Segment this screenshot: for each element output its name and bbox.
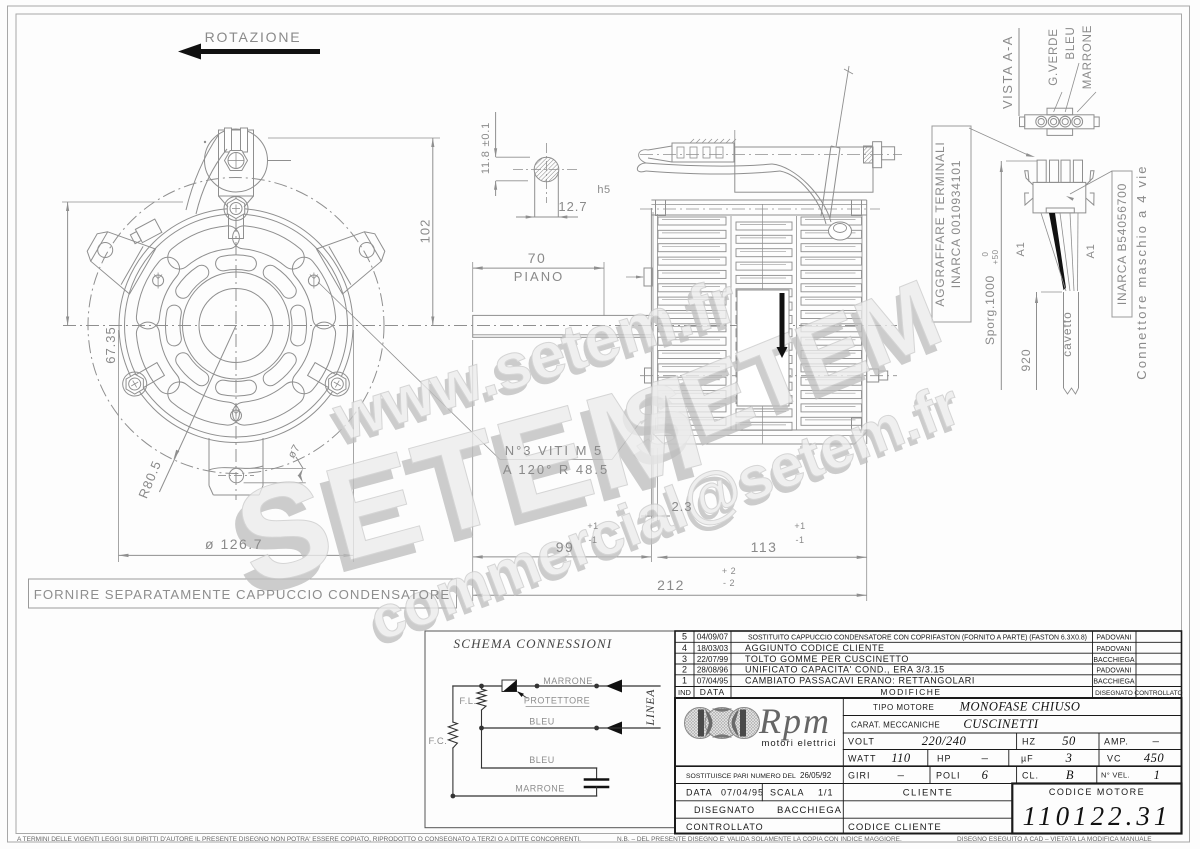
svg-text:+1: +1 — [587, 521, 598, 531]
svg-text:A TERMINI DELLE VIGENTI LEGGI: A TERMINI DELLE VIGENTI LEGGI SUI DIRITT… — [17, 836, 581, 843]
svg-text:AMP.: AMP. — [1104, 737, 1129, 747]
svg-text:UNIFICATO CAPACITA' COND., ERA: UNIFICATO CAPACITA' COND., ERA 3/3.15 — [745, 665, 945, 675]
svg-text:µF: µF — [1021, 754, 1034, 764]
svg-text:TOLTO GOMME PER CUSCINETTO: TOLTO GOMME PER CUSCINETTO — [745, 654, 909, 664]
svg-text:113: 113 — [751, 539, 778, 555]
svg-text:PADOVANI: PADOVANI — [1096, 646, 1131, 653]
svg-text:Sporg.1000: Sporg.1000 — [983, 275, 997, 345]
svg-text:+1: +1 — [794, 521, 805, 531]
svg-text:1: 1 — [1154, 768, 1161, 782]
svg-text:04/09/07: 04/09/07 — [697, 633, 729, 642]
svg-text:VC: VC — [1107, 754, 1122, 764]
svg-text:BLEU: BLEU — [529, 717, 555, 727]
svg-text:VOLT: VOLT — [848, 737, 875, 747]
svg-text:450: 450 — [1144, 751, 1165, 765]
svg-text:CARAT. MECCANICHE: CARAT. MECCANICHE — [851, 721, 940, 730]
svg-text:CL.: CL. — [1022, 771, 1039, 781]
svg-text:11.8 ±0.1: 11.8 ±0.1 — [480, 122, 492, 174]
svg-text:CODICE MOTORE: CODICE MOTORE — [1049, 787, 1145, 797]
svg-text:PADOVANI: PADOVANI — [1096, 668, 1131, 675]
svg-text:CONTROLLATO: CONTROLLATO — [1134, 690, 1182, 697]
svg-text:DISEGNATO: DISEGNATO — [694, 805, 755, 815]
svg-text:CLIENTE: CLIENTE — [903, 788, 954, 799]
svg-text:h5: h5 — [597, 184, 610, 196]
svg-text:2: 2 — [682, 665, 687, 675]
svg-text:FORNIRE SEPARATAMENTE CAPPUCCI: FORNIRE SEPARATAMENTE CAPPUCCIO CONDENSA… — [34, 587, 450, 602]
svg-text:CUSCINETTI: CUSCINETTI — [963, 717, 1038, 731]
svg-text:- 2: - 2 — [723, 578, 735, 588]
svg-text:102: 102 — [418, 219, 433, 244]
svg-text:07/04/95: 07/04/95 — [697, 676, 729, 685]
svg-text:PIANO: PIANO — [514, 269, 564, 284]
svg-text:SCHEMA CONNESSIONI: SCHEMA CONNESSIONI — [454, 636, 613, 651]
svg-text:BACCHIEGA: BACCHIEGA — [1093, 678, 1135, 685]
svg-text:CAMBIATO PASSACAVI ERANO: RETT: CAMBIATO PASSACAVI ERANO: RETTANGOLARI — [745, 675, 975, 685]
svg-text:IND: IND — [678, 688, 692, 697]
svg-text:N° VEL.: N° VEL. — [1101, 771, 1130, 780]
svg-text:-1: -1 — [588, 535, 597, 545]
svg-text:AGGRAFFARE TERMINALI: AGGRAFFARE TERMINALI — [933, 141, 947, 306]
svg-text:+ 2: + 2 — [722, 566, 736, 576]
svg-text:5: 5 — [682, 632, 687, 642]
svg-text:PADOVANI: PADOVANI — [1096, 635, 1131, 642]
svg-text:VISTA A-A: VISTA A-A — [1000, 35, 1015, 109]
svg-text:50: 50 — [1062, 734, 1076, 748]
svg-text:cavetto: cavetto — [1060, 311, 1074, 357]
svg-text:BLEU: BLEU — [1065, 26, 1077, 59]
svg-text:AGGIUNTO CODICE CLIENTE: AGGIUNTO CODICE CLIENTE — [745, 643, 885, 653]
svg-text:DISEGNO ESEGUITO A CAD – VIETA: DISEGNO ESEGUITO A CAD – VIETATA LA MODI… — [957, 836, 1152, 843]
svg-text:–: – — [1152, 734, 1160, 748]
svg-text:18/03/03: 18/03/03 — [697, 644, 729, 653]
svg-text:TIPO MOTORE: TIPO MOTORE — [873, 703, 934, 712]
svg-text:BLEU: BLEU — [529, 755, 555, 765]
svg-text:0: 0 — [981, 251, 990, 256]
svg-text:70: 70 — [528, 250, 547, 266]
svg-text:+50: +50 — [991, 249, 1000, 264]
svg-text:SOSTITUISCE PARI NUMERO DEL: SOSTITUISCE PARI NUMERO DEL — [686, 773, 796, 780]
svg-text:67.35: 67.35 — [103, 326, 118, 364]
svg-text:MARRONE: MARRONE — [1082, 25, 1094, 89]
svg-text:110122.31: 110122.31 — [1023, 801, 1172, 831]
svg-text:-1: -1 — [795, 535, 804, 545]
svg-text:INARCA B54056700: INARCA B54056700 — [1115, 183, 1129, 305]
svg-text:–: – — [981, 751, 989, 765]
svg-text:WATT: WATT — [848, 754, 877, 764]
svg-text:N.B. – DEL PRESENTE DISEGNO E': N.B. – DEL PRESENTE DISEGNO E' VALIDA SO… — [617, 836, 902, 843]
svg-text:SOSTITUITO CAPPUCCIO CONDENSAT: SOSTITUITO CAPPUCCIO CONDENSATORE CON CO… — [748, 635, 1087, 642]
svg-text:99: 99 — [556, 539, 575, 555]
svg-text:SCALA: SCALA — [770, 788, 805, 798]
svg-text:6: 6 — [982, 768, 989, 782]
svg-text:4: 4 — [682, 643, 687, 653]
svg-text:ROTAZIONE: ROTAZIONE — [205, 29, 302, 45]
svg-text:POLI: POLI — [936, 771, 961, 781]
svg-text:Connettore maschio a 4 vie: Connettore maschio a 4 vie — [1134, 164, 1149, 379]
svg-text:motori elettrici: motori elettrici — [761, 738, 836, 749]
svg-text:N°3 VITI M 5: N°3 VITI M 5 — [505, 443, 604, 458]
svg-text:MODIFICHE: MODIFICHE — [880, 687, 941, 697]
svg-text:B: B — [1066, 768, 1074, 782]
svg-text:MARRONE: MARRONE — [515, 784, 565, 794]
svg-text:DISEGNATO: DISEGNATO — [1095, 690, 1133, 697]
svg-text:2.3: 2.3 — [671, 499, 692, 514]
svg-text:PROTETTORE: PROTETTORE — [524, 696, 590, 706]
svg-text:28/08/96: 28/08/96 — [697, 666, 729, 675]
svg-text:22/07/99: 22/07/99 — [697, 655, 729, 664]
svg-text:1: 1 — [682, 675, 687, 685]
svg-text:Rpm: Rpm — [758, 701, 831, 741]
svg-text:HP: HP — [937, 754, 952, 764]
svg-text:G.VERDE: G.VERDE — [1048, 28, 1060, 85]
svg-text:DATA: DATA — [700, 687, 725, 697]
svg-text:MONOFASE CHIUSO: MONOFASE CHIUSO — [959, 700, 1081, 714]
svg-text:1/1: 1/1 — [818, 788, 834, 798]
svg-text:GIRI: GIRI — [848, 771, 871, 781]
svg-text:INARCA 0010934101: INARCA 0010934101 — [949, 160, 963, 288]
svg-text:12.7: 12.7 — [558, 199, 587, 214]
svg-text:A 120° R 48.5: A 120° R 48.5 — [503, 462, 609, 477]
svg-text:MARRONE: MARRONE — [543, 676, 593, 686]
svg-text:ø 126.7: ø 126.7 — [205, 536, 263, 552]
svg-text:DATA: DATA — [686, 788, 713, 798]
svg-text:3: 3 — [682, 654, 687, 664]
svg-text:3: 3 — [1065, 751, 1073, 765]
svg-text:26/05/92: 26/05/92 — [800, 771, 832, 780]
svg-text:BACCHIEGA: BACCHIEGA — [1093, 657, 1135, 664]
svg-text:BACCHIEGA: BACCHIEGA — [777, 805, 842, 816]
svg-text:920: 920 — [1019, 348, 1033, 371]
svg-text:212: 212 — [657, 577, 685, 593]
svg-text:110: 110 — [891, 751, 911, 765]
svg-text:CODICE CLIENTE: CODICE CLIENTE — [848, 822, 942, 833]
svg-text:220/240: 220/240 — [922, 734, 967, 748]
svg-text:–: – — [897, 768, 905, 782]
svg-text:HZ: HZ — [1022, 737, 1036, 747]
svg-text:A1: A1 — [1085, 243, 1097, 258]
svg-text:F.L.: F.L. — [459, 696, 476, 707]
svg-text:07/04/95: 07/04/95 — [721, 788, 764, 798]
svg-text:CONTROLLATO: CONTROLLATO — [686, 822, 764, 832]
svg-text:F.C.: F.C. — [429, 736, 448, 747]
svg-text:LINEA: LINEA — [645, 689, 657, 727]
svg-text:A1: A1 — [1015, 241, 1027, 256]
